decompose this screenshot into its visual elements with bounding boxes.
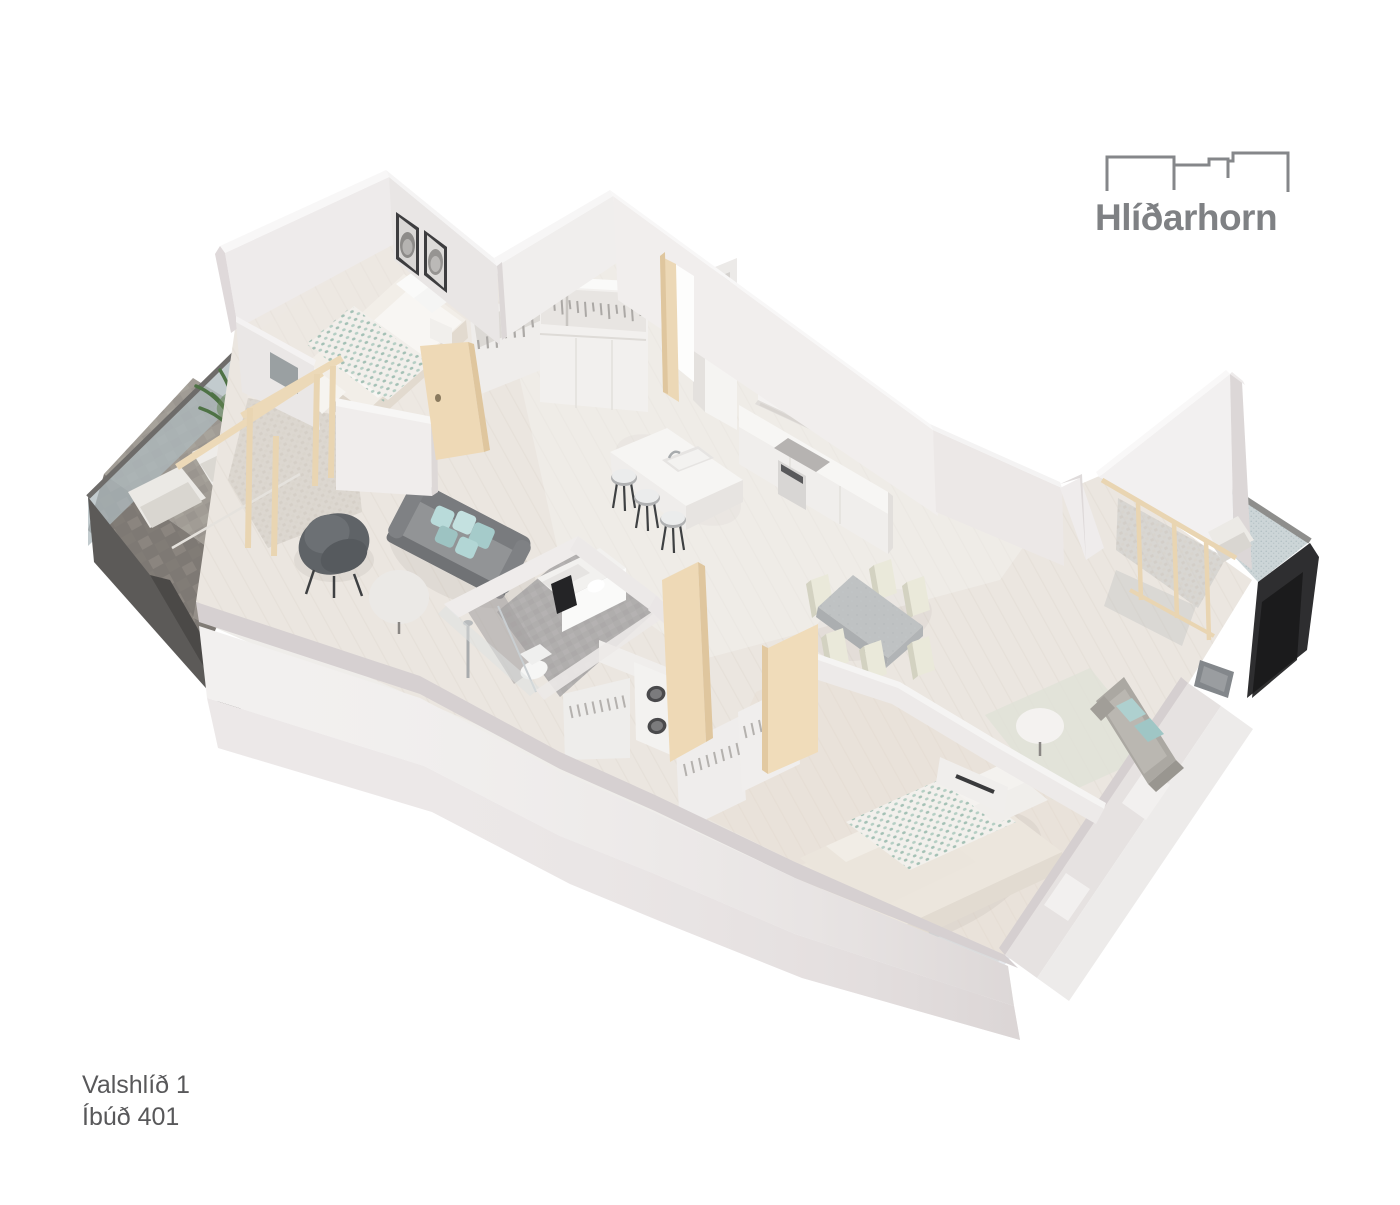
svg-text:Íbúð 401: Íbúð 401	[82, 1102, 179, 1131]
svg-text:Hlíðarhorn: Hlíðarhorn	[1095, 197, 1277, 238]
svg-text:Valshlíð 1: Valshlíð 1	[82, 1071, 190, 1099]
